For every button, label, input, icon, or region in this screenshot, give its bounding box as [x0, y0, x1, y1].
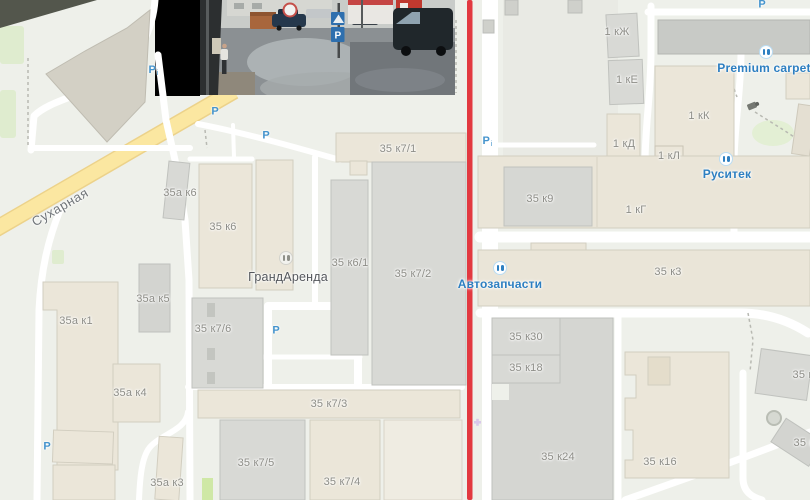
building-label: 35 к6/1 [332, 257, 369, 269]
building-label: 1 кК [688, 110, 709, 122]
building-label: 35 к [793, 369, 810, 381]
building-label: 1 кЕ [616, 74, 638, 86]
building-label: 35 к7/5 [238, 457, 275, 469]
route-line[interactable] [467, 0, 473, 500]
building-label: 35 к [794, 437, 810, 449]
poi-label-rusitek[interactable]: Руситек [703, 167, 751, 181]
grandarenda-icon[interactable] [279, 251, 293, 265]
parking-icon[interactable]: Pi [483, 136, 492, 148]
building-label: 35 к7/4 [324, 476, 361, 488]
parking-icon[interactable]: P [758, 0, 765, 11]
building-label: 35 к7/2 [395, 268, 432, 280]
building-label: 35а к5 [136, 293, 170, 305]
building-label: 1 кЛ [658, 150, 680, 162]
building-label: 1 кГ [626, 204, 647, 216]
autoparts-icon[interactable] [493, 261, 507, 275]
building-label: 35 к18 [509, 362, 543, 374]
parking-icon[interactable]: Pi [149, 65, 158, 77]
building-label: 35а к4 [113, 387, 147, 399]
building-label: 35 к9 [526, 193, 553, 205]
street-photo-image: P [200, 0, 455, 95]
poi-label-autoparts[interactable]: Автозапчасти [458, 277, 542, 291]
building-label: 35а к3 [150, 477, 184, 489]
parking-icon[interactable]: P [272, 326, 279, 337]
tree-icon [767, 411, 781, 425]
building-label: 35 к7/6 [195, 323, 232, 335]
building-label: 35 к16 [643, 456, 677, 468]
building-label: 35а к6 [163, 187, 197, 199]
parking-icon[interactable]: P [211, 107, 218, 118]
poi-label-premium-carpet[interactable]: Premium carpet [717, 61, 810, 75]
rusitek-icon[interactable] [719, 152, 733, 166]
photo-parking-sign: P [334, 31, 341, 42]
building-label: 35 к30 [509, 331, 543, 343]
building-label: 35а к1 [59, 315, 93, 327]
building-label: 35 к6 [209, 221, 236, 233]
premium-carpet-icon[interactable] [759, 45, 773, 59]
street-photo[interactable]: P [200, 0, 455, 95]
parking-icon[interactable]: P [262, 131, 269, 142]
poi-label-grandarenda[interactable]: ГрандАренда [248, 270, 328, 284]
parking-icon[interactable]: P [43, 442, 50, 453]
building-label: 35 к3 [654, 266, 681, 278]
building-label: 1 кЖ [605, 26, 630, 38]
building-label: 35 к24 [541, 451, 575, 463]
building-label: 35 к7/3 [311, 398, 348, 410]
building-label: 1 кД [613, 138, 635, 150]
map-canvas[interactable]: P Сухарная 35а к6 35 к6 35 к7/1 35 к6/1 … [0, 0, 810, 500]
building-label: 35 к7/1 [380, 143, 417, 155]
